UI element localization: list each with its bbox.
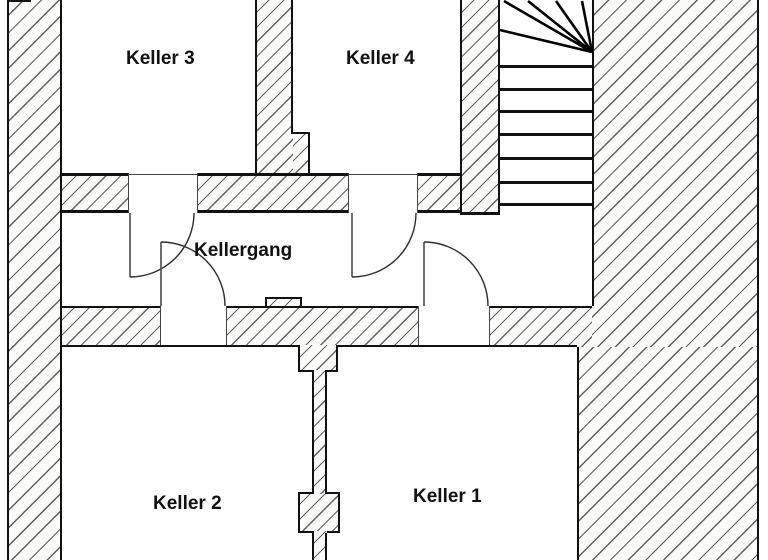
keller1-door-swing-arc — [424, 242, 488, 306]
basement-floor-plan: Keller 3 Keller 4 Kellergang Keller 2 Ke… — [0, 0, 768, 560]
room-label-keller3: Keller 3 — [126, 48, 195, 69]
stair-winder-lines — [500, 1, 592, 52]
keller3-door-swing-arc — [130, 213, 194, 277]
room-label-kellergang: Kellergang — [194, 240, 292, 261]
room-label-keller4: Keller 4 — [346, 48, 415, 69]
room-label-keller1: Keller 1 — [413, 486, 482, 507]
room-label-keller2: Keller 2 — [153, 493, 222, 514]
doors-and-stair-overlay — [0, 0, 768, 560]
keller4-door-swing-arc — [352, 213, 416, 277]
